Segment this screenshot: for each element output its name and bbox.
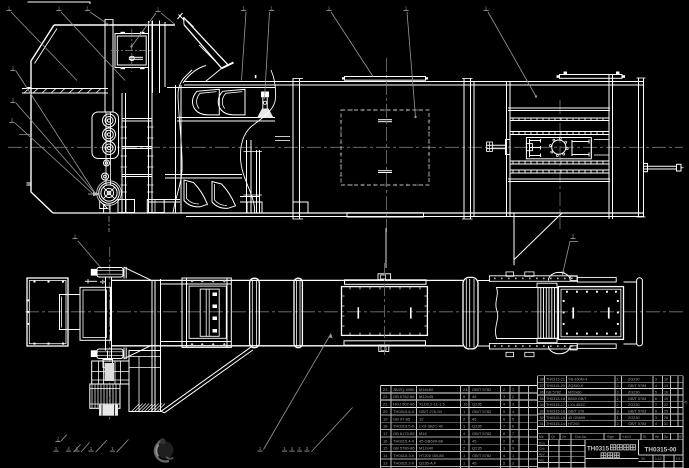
svg-text:TH0315-15: TH0315-15 [546,416,565,420]
svg-text:8: 8 [503,432,505,436]
svg-text:HGJ 502-86: HGJ 502-86 [393,402,415,407]
svg-text:TH0315-18: TH0315-18 [546,397,565,401]
svg-text:GB 6170-86: GB 6170-86 [393,431,415,436]
svg-text:GB/T 5783: GB/T 5783 [628,397,646,401]
svg-text:1: 1 [617,416,619,420]
svg-text:8: 8 [512,439,514,443]
svg-text:19: 19 [383,416,388,421]
svg-text:Y.M.D: Y.M.D [622,435,632,439]
svg-text:45: 45 [472,438,477,443]
svg-text:36: 36 [540,390,544,394]
svg-text:Wt: Wt [641,457,645,461]
svg-text:1:10: 1:10 [655,457,662,461]
svg-text:TH0315: TH0315 [587,446,610,453]
svg-text:15: 15 [383,446,388,451]
svg-text:TH0315-16: TH0315-16 [546,409,565,413]
svg-text:7: 7 [655,403,657,407]
svg-text:4: 4 [503,454,505,458]
svg-text:TH0315-21: TH0315-21 [546,378,565,382]
svg-text:45 GB699: 45 GB699 [568,416,585,420]
svg-text:TH0315.2-0: TH0315.2-0 [393,460,415,465]
svg-text:4: 4 [503,403,505,407]
svg-text:GB/T 276-94: GB/T 276-94 [419,409,443,414]
svg-text:Qt: Qt [551,435,555,439]
svg-text:LX3-38ZC-42: LX3-38ZC-42 [419,424,444,429]
svg-text:2: 2 [617,403,619,407]
svg-text:7: 7 [512,432,514,436]
svg-text:Q235: Q235 [472,446,483,451]
svg-text:45 GB699-88: 45 GB699-88 [419,438,444,443]
svg-text:GB 5782-86: GB 5782-86 [393,394,415,399]
svg-text:10: 10 [664,378,668,382]
svg-text:Doc.No: Doc.No [575,435,586,439]
svg-text:12: 12 [419,416,424,421]
svg-text:M12x40: M12x40 [419,446,434,451]
svg-text:GB/T 276: GB/T 276 [568,409,584,413]
svg-text:Q235: Q235 [472,424,483,429]
svg-text:37: 37 [540,384,544,388]
svg-text:28: 28 [664,416,668,420]
svg-text:20: 20 [383,409,388,414]
svg-text:ZG230: ZG230 [628,403,640,407]
svg-text:3: 3 [655,378,657,382]
svg-text:TH0315.5-0: TH0315.5-0 [393,424,415,429]
svg-text:32: 32 [540,416,544,420]
svg-text:45: 45 [472,394,477,399]
svg-text:Sign: Sign [607,435,614,439]
svg-text:GB/T 5782: GB/T 5782 [472,453,492,458]
svg-text:6: 6 [512,425,514,429]
svg-text:Sh: Sh [679,435,683,439]
svg-text:TH0315-17: TH0315-17 [546,403,565,407]
svg-text:16: 16 [664,390,668,394]
svg-text:1: 1 [512,454,514,458]
svg-text:LX4-45ZC: LX4-45ZC [568,403,586,407]
svg-text:Chk: Chk [539,447,545,451]
svg-text:3: 3 [512,403,514,407]
svg-text:St: St [643,435,646,439]
svg-text:GB/T 5782: GB/T 5782 [472,387,492,392]
svg-text:9: 9 [512,447,514,451]
svg-text:13: 13 [664,384,668,388]
svg-text:1: 1 [617,397,619,401]
svg-text:3: 3 [617,409,619,413]
svg-text:34: 34 [540,403,544,407]
svg-text:45: 45 [684,401,688,405]
svg-text:GB/T 5783: GB/T 5783 [628,409,646,413]
svg-text:45: 45 [472,460,477,465]
svg-text:GB 5782: GB 5782 [546,390,561,394]
svg-text:2: 2 [617,384,619,388]
svg-text:B650 GB/T: B650 GB/T [568,397,587,401]
svg-text:3: 3 [655,416,657,420]
svg-text:TH0315.3-0: TH0315.3-0 [393,453,415,458]
svg-text:5: 5 [503,461,505,465]
svg-text:8: 8 [655,409,657,413]
svg-text:TH0315-00: TH0315-00 [645,447,677,454]
svg-text:Mk: Mk [539,435,544,439]
svg-text:17: 17 [383,431,388,436]
svg-text:GB/T 5782: GB/T 5782 [472,409,492,414]
svg-text:2: 2 [617,422,619,426]
svg-text:HT200: HT200 [568,422,579,426]
svg-text:XLD2.2-11-1.5: XLD2.2-11-1.5 [419,402,445,407]
svg-text:25: 25 [664,409,668,413]
svg-text:M12x45: M12x45 [419,394,434,399]
svg-text:16: 16 [383,438,388,443]
svg-text:2: 2 [503,388,505,392]
svg-text:19: 19 [664,397,668,401]
svg-text:14: 14 [383,453,388,458]
svg-text:GB 97-85: GB 97-85 [393,416,411,421]
svg-text:TH0315-14: TH0315-14 [546,422,565,426]
svg-text:5: 5 [503,410,505,414]
svg-text:Sc: Sc [664,435,668,439]
svg-text:5: 5 [512,417,514,421]
svg-text:21: 21 [383,402,388,407]
svg-text:1/1: 1/1 [676,457,681,461]
svg-text:GB/T 5783: GB/T 5783 [628,422,646,426]
svg-text:GB/T 5782: GB/T 5782 [472,431,492,436]
svg-text:6: 6 [655,397,657,401]
svg-text:2: 2 [503,439,505,443]
svg-text:24: 24 [463,387,468,392]
svg-text:3: 3 [503,395,505,399]
svg-text:M16: M16 [419,431,428,436]
svg-text:13: 13 [383,460,388,465]
svg-text:ZG230: ZG230 [628,390,640,394]
svg-text:Apv: Apv [539,453,545,457]
svg-text:Zn: Zn [562,435,566,439]
svg-text:45: 45 [472,416,477,421]
svg-text:TH0315.6-0: TH0315.6-0 [393,409,415,414]
svg-text:4: 4 [512,410,514,414]
svg-text:33: 33 [540,409,544,413]
svg-text:35: 35 [540,397,544,401]
svg-text:YB-160M-4: YB-160M-4 [568,378,587,382]
svg-text:Dsg: Dsg [539,442,545,446]
svg-text:4: 4 [655,384,657,388]
svg-text:7: 7 [503,425,505,429]
svg-text:16: 16 [463,402,468,407]
svg-text:22: 22 [664,403,668,407]
svg-text:5: 5 [655,390,657,394]
svg-text:M16x50: M16x50 [419,387,434,392]
svg-text:31: 31 [664,422,668,426]
svg-text:1: 1 [512,388,514,392]
svg-text:ZG230: ZG230 [628,416,640,420]
svg-text:GB/T 5783: GB/T 5783 [628,384,646,388]
svg-text:JB/ZQ 4390: JB/ZQ 4390 [393,387,415,392]
svg-text:31: 31 [540,422,544,426]
svg-text:ZG230: ZG230 [628,378,640,382]
svg-text:1: 1 [617,378,619,382]
svg-text:Q235: Q235 [472,402,483,407]
svg-text:HT200 GB-85: HT200 GB-85 [419,453,444,458]
svg-text:22: 22 [383,394,388,399]
svg-text:M20x80: M20x80 [568,390,582,394]
svg-text:ZQ350-II: ZQ350-II [568,384,583,388]
svg-text:2: 2 [512,461,514,465]
svg-text:3: 3 [503,447,505,451]
svg-text:4: 4 [655,422,657,426]
svg-text:GB 5780-86: GB 5780-86 [393,446,415,451]
svg-text:Std: Std [539,458,544,462]
svg-text:6: 6 [503,417,505,421]
svg-text:38: 38 [540,378,544,382]
svg-text:Q235-A.F: Q235-A.F [419,460,437,465]
svg-text:3: 3 [617,390,619,394]
svg-text:23: 23 [383,387,388,392]
svg-text:18: 18 [383,424,388,429]
svg-text:TH0315.4-0: TH0315.4-0 [393,438,415,443]
svg-text:TH0315-20: TH0315-20 [546,384,565,388]
svg-text:Wt: Wt [655,435,659,439]
svg-text:2: 2 [512,395,514,399]
